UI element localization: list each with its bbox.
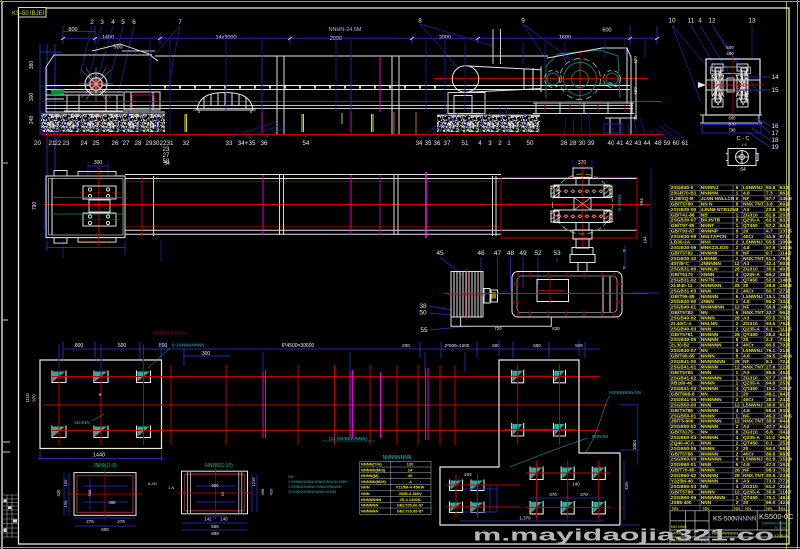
svg-text:NN: NN <box>779 506 785 511</box>
svg-text:17: 17 <box>771 130 779 137</box>
svg-text:75.1: 75.1 <box>780 468 790 474</box>
svg-text:62.5: 62.5 <box>766 218 776 224</box>
svg-text:2SGB31-02: 2SGB31-02 <box>671 277 697 283</box>
svg-text:2SGB41-03: 2SGB41-03 <box>671 386 697 392</box>
svg-text:40Cr: 40Cr <box>743 288 754 294</box>
svg-text:33.6: 33.6 <box>780 484 790 490</box>
svg-text:QT450: QT450 <box>743 223 758 229</box>
svg-text:2SGB60-00: 2SGB60-00 <box>671 457 697 463</box>
svg-text:370: 370 <box>578 160 587 166</box>
svg-text:1: 1 <box>736 191 739 197</box>
svg-text:N 1 N: N 1 N <box>775 526 785 530</box>
svg-text:NNNLN: NNNLN <box>701 267 718 273</box>
svg-text:500: 500 <box>118 343 127 349</box>
svg-text:9: 9 <box>521 18 525 25</box>
svg-text:BNNNN: BNNNN <box>701 332 719 338</box>
svg-text:25.0: 25.0 <box>780 381 790 387</box>
svg-text:2SGB31-00: 2SGB31-00 <box>671 267 697 273</box>
svg-text:NNNNNNNN-NN: NNNNNNNN-NN <box>609 390 641 395</box>
svg-text:46: 46 <box>477 250 485 257</box>
svg-text:NNNNN: NNNNN <box>701 424 719 430</box>
svg-text:1: 1 <box>736 413 739 419</box>
svg-text:2SGB30-08: 2SGB30-08 <box>671 234 697 240</box>
svg-text:69.9: 69.9 <box>780 201 790 207</box>
svg-text:2.3: 2.3 <box>766 337 773 343</box>
svg-text:150: 150 <box>63 500 68 507</box>
svg-text:50: 50 <box>419 310 427 317</box>
svg-text:NNNNN: NNNNN <box>701 435 719 441</box>
svg-text:600: 600 <box>533 343 541 348</box>
svg-text:M24NN: M24NN <box>74 420 89 425</box>
svg-text:NNN: NNN <box>701 370 712 376</box>
svg-text:36: 36 <box>434 140 441 147</box>
svg-text:21.6: 21.6 <box>780 348 790 354</box>
svg-text:NNWNJ: NNWNJ <box>701 185 719 191</box>
svg-text:248: 248 <box>29 116 35 125</box>
svg-text:XB160-40: XB160-40 <box>671 381 693 387</box>
svg-text:200: 200 <box>402 343 410 348</box>
svg-text:94.0: 94.0 <box>766 446 776 452</box>
svg-text:L5NWNJ: L5NWNJ <box>743 348 763 354</box>
svg-text:12: 12 <box>734 402 740 408</box>
svg-text:2SGB50-05: 2SGB50-05 <box>671 446 697 452</box>
svg-text:27: 27 <box>123 140 130 147</box>
svg-text:Q235-A: Q235-A <box>743 381 760 387</box>
svg-text:Q235-A: Q235-A <box>743 272 760 278</box>
svg-text:790: 790 <box>32 202 38 211</box>
svg-text:102.6: 102.6 <box>780 245 792 251</box>
svg-text:NN: NN <box>672 506 678 511</box>
svg-text:28: 28 <box>734 283 740 289</box>
svg-text:26: 26 <box>112 140 119 147</box>
svg-text:34+: 34+ <box>238 140 249 147</box>
svg-text:94.8: 94.8 <box>766 381 776 387</box>
svg-text:55.5: 55.5 <box>766 239 776 245</box>
svg-text:7.3: 7.3 <box>766 191 773 197</box>
svg-text:KS-500: KS-500 <box>713 516 735 523</box>
svg-text:39.5: 39.5 <box>766 354 776 360</box>
svg-text:76.4: 76.4 <box>780 321 790 327</box>
svg-text:2: 2 <box>736 321 739 327</box>
svg-text:JS85-4 380V: JS85-4 380V <box>398 491 422 496</box>
svg-text:6: 6 <box>132 19 136 26</box>
svg-text:3.28/XQ-B: 3.28/XQ-B <box>671 196 694 202</box>
svg-text:ZG310: ZG310 <box>743 267 758 273</box>
svg-text:97.7: 97.7 <box>766 375 776 381</box>
svg-text:2SGB50-02: 2SGB50-02 <box>671 424 697 430</box>
svg-text:NNNN NNNN: NNNN NNNN <box>153 331 186 337</box>
svg-text:NNNN: NNNN <box>701 468 715 474</box>
svg-text:2: 2 <box>736 288 739 294</box>
svg-text:MNK22LE20: MNK22LE20 <box>701 245 729 251</box>
svg-text:1: 1 <box>736 381 739 387</box>
svg-text:4.8: 4.8 <box>743 245 750 251</box>
svg-text:NNNNNNN: NNNNNNN <box>701 359 726 365</box>
svg-text:109.6: 109.6 <box>780 375 792 381</box>
svg-text:73.5: 73.5 <box>780 316 790 322</box>
svg-text:A3: A3 <box>743 478 749 484</box>
svg-text:1064: 1064 <box>632 439 637 450</box>
svg-text:JNNNNN: JNNNNN <box>701 261 722 267</box>
svg-text:64.1: 64.1 <box>780 223 790 229</box>
svg-text:QT450: QT450 <box>743 386 758 392</box>
svg-text:20.7: 20.7 <box>780 212 790 218</box>
svg-text:1: 1 <box>736 256 739 262</box>
svg-text:6: 6 <box>736 337 739 343</box>
svg-text:34: 34 <box>416 140 423 147</box>
svg-text:9.7: 9.7 <box>766 250 773 256</box>
svg-text:NNLNN: NNLNN <box>701 321 718 327</box>
svg-text:1440: 1440 <box>93 453 105 459</box>
svg-text:420: 420 <box>56 489 61 497</box>
svg-text:2: 2 <box>736 207 739 213</box>
svg-text:800: 800 <box>68 27 77 33</box>
svg-text:38.9: 38.9 <box>766 419 776 425</box>
svg-text:NB: NB <box>701 212 708 218</box>
svg-text:2SGB40-07: 2SGB40-07 <box>671 348 697 354</box>
svg-text:970: 970 <box>32 394 37 402</box>
svg-text:1:5: 1:5 <box>741 142 747 147</box>
svg-text:NNNNN-NNNNN: NNNNN-NNNNN <box>762 522 791 526</box>
svg-text:8: 8 <box>736 218 739 224</box>
svg-text:6.1: 6.1 <box>766 326 773 332</box>
svg-text:GB1T25.60-87: GB1T25.60-87 <box>397 503 424 508</box>
svg-text:2SGB30-10: 2SGB30-10 <box>671 256 697 262</box>
svg-text:54: 54 <box>303 140 310 147</box>
svg-text:63.8: 63.8 <box>780 185 790 191</box>
svg-text:28.2: 28.2 <box>766 332 776 338</box>
svg-text:0-1NNNNNNNN: 0-1NNNNNNNN <box>172 343 205 348</box>
svg-text:JNNN: JNNN <box>701 299 715 305</box>
svg-text:A3: A3 <box>743 207 749 213</box>
svg-text:35: 35 <box>425 140 432 147</box>
svg-text:NNNNNNNN: NNNNNNNN <box>383 455 412 461</box>
svg-text:40: 40 <box>408 473 413 478</box>
svg-text:47.0: 47.0 <box>766 462 776 468</box>
svg-text:NNTN: NNTN <box>701 277 715 283</box>
svg-text:88.6: 88.6 <box>780 207 790 213</box>
svg-text:51.2: 51.2 <box>766 484 776 490</box>
svg-text:47: 47 <box>494 250 502 257</box>
svg-text:142: 142 <box>205 517 213 522</box>
svg-text:270: 270 <box>86 519 94 524</box>
svg-text:11.0: 11.0 <box>766 435 775 441</box>
svg-text:50.7: 50.7 <box>766 288 776 294</box>
svg-text:670: 670 <box>729 122 737 127</box>
svg-text:(14-M24NNNNNN): (14-M24NNNNNN) <box>329 436 367 441</box>
svg-text:43: 43 <box>635 140 642 147</box>
svg-text:60: 60 <box>673 140 680 147</box>
svg-text:NNNNN: NNNNN <box>701 337 719 343</box>
svg-text:81.9: 81.9 <box>766 212 776 218</box>
svg-text:194: 194 <box>643 236 648 244</box>
svg-text:234: 234 <box>464 472 472 477</box>
svg-text:GB/T5781: GB/T5781 <box>671 332 693 338</box>
svg-text:160: 160 <box>63 479 68 486</box>
svg-text:2SGB60-03: 2SGB60-03 <box>671 484 697 490</box>
svg-text:94.7: 94.7 <box>780 392 790 398</box>
svg-text:112.5: 112.5 <box>780 326 792 332</box>
svg-text:500: 500 <box>726 45 734 50</box>
svg-text:NNN: NNN <box>701 288 712 294</box>
svg-text:51: 51 <box>462 140 469 147</box>
svg-text:NN: NN <box>745 506 751 511</box>
svg-text:85.5: 85.5 <box>766 370 776 376</box>
svg-text:1.NNNNNNNNNNNNNNNNN.NNN: 1.NNNNNNNNNNNNNNNNN.NNN <box>288 480 347 484</box>
svg-text:24.2: 24.2 <box>780 397 790 403</box>
svg-text:15: 15 <box>771 87 779 94</box>
svg-text:28: 28 <box>734 359 740 365</box>
svg-text:2: 2 <box>736 234 739 240</box>
svg-text:Y225M-40: Y225M-40 <box>671 478 693 484</box>
svg-text:30: 30 <box>579 140 586 147</box>
svg-text:NNNNNNN: NNNNNNN <box>701 495 726 501</box>
svg-text:47.7: 47.7 <box>766 424 776 430</box>
svg-text:L5NWNJ: L5NWNJ <box>743 294 763 300</box>
svg-text:NNNNN: NNNNN <box>701 473 719 479</box>
svg-text:NNX.TNT: NNX.TNT <box>743 310 764 316</box>
svg-text:2SGB60-01: 2SGB60-01 <box>671 462 697 468</box>
svg-text:GB/T70-85: GB/T70-85 <box>671 468 695 474</box>
svg-text:36.6: 36.6 <box>766 402 776 408</box>
svg-text:91.0: 91.0 <box>780 402 790 408</box>
svg-text:1: 1 <box>736 392 739 398</box>
svg-text:57.7: 57.7 <box>766 196 776 202</box>
svg-text:56.8: 56.8 <box>766 305 776 311</box>
svg-text:57.5: 57.5 <box>766 316 776 322</box>
svg-text:48.4: 48.4 <box>780 495 790 501</box>
svg-text:NNN: NNN <box>701 462 712 468</box>
svg-text:GB/T6175: GB/T6175 <box>671 430 693 436</box>
svg-text:NNNN8: NNNN8 <box>701 250 718 256</box>
svg-text:57.6: 57.6 <box>766 245 776 251</box>
svg-text:NNNNN: NNNNN <box>701 294 719 300</box>
svg-text:3: 3 <box>100 19 104 26</box>
svg-text:QT450: QT450 <box>743 332 758 338</box>
svg-text:2SGB30-09: 2SGB30-09 <box>671 245 697 251</box>
svg-text:2*600=1200: 2*600=1200 <box>445 343 470 348</box>
svg-text:608: 608 <box>101 527 109 532</box>
svg-text:61: 61 <box>682 140 689 147</box>
svg-text:LNNNE: LNNNE <box>701 256 718 262</box>
svg-text:NNNNNNN: NNNNNNN <box>361 497 381 502</box>
svg-text:NNN: NNN <box>701 326 712 332</box>
svg-text:410: 410 <box>624 482 629 490</box>
svg-text:NNNNN: NNNNN <box>701 408 719 414</box>
svg-text:2SGB40-05: 2SGB40-05 <box>671 337 697 343</box>
svg-text:24: 24 <box>408 467 413 472</box>
svg-text:27.6: 27.6 <box>766 364 776 370</box>
svg-text:75.1: 75.1 <box>766 495 776 501</box>
svg-text:98.6: 98.6 <box>780 451 790 457</box>
svg-text:8.1: 8.1 <box>766 359 773 365</box>
svg-text:64: 64 <box>740 167 746 173</box>
svg-text:14: 14 <box>771 74 779 81</box>
svg-text:93.5: 93.5 <box>766 321 776 327</box>
svg-text:15.1: 15.1 <box>766 294 776 300</box>
svg-text:114.2: 114.2 <box>780 250 792 256</box>
svg-text:45.3: 45.3 <box>780 370 790 376</box>
svg-text:45.3: 45.3 <box>766 413 776 419</box>
svg-text:28: 28 <box>135 140 142 147</box>
svg-text:2.NNNNNNNNN.NNNNNNNNN: 2.NNNNNNNNN.NNNNNNNNN <box>288 485 342 489</box>
svg-text:NNX.TNT: NNX.TNT <box>743 201 764 207</box>
svg-text:1-N: 1-N <box>168 485 175 490</box>
svg-text:2: 2 <box>736 239 739 245</box>
svg-text:NNHN-24.5M: NNHN-24.5M <box>328 27 361 33</box>
svg-text:L5NWNJ: L5NWNJ <box>743 402 763 408</box>
svg-text:Y225M-4 45KW: Y225M-4 45KW <box>396 485 425 490</box>
svg-text:2SGB50-01: 2SGB50-01 <box>671 413 697 419</box>
svg-text:1215: 1215 <box>251 477 256 487</box>
svg-text:ZQ40-4CA: ZQ40-4CA <box>671 440 695 446</box>
svg-text:20: 20 <box>743 283 749 289</box>
svg-text:48: 48 <box>507 250 515 257</box>
svg-text:12: 12 <box>734 419 740 425</box>
svg-text:2: 2 <box>736 397 739 403</box>
svg-text:370: 370 <box>580 492 588 497</box>
svg-text:4: 4 <box>698 18 702 25</box>
svg-text:32: 32 <box>183 140 190 147</box>
svg-text:NN:: NN: <box>288 475 295 479</box>
svg-text:23.9: 23.9 <box>780 473 790 479</box>
svg-text:2SGB41-00: 2SGB41-00 <box>671 359 697 365</box>
svg-text:6: 6 <box>736 196 739 202</box>
svg-text:NN: NN <box>701 430 708 436</box>
svg-text:64.4: 64.4 <box>780 419 790 425</box>
svg-text:6*4500=30600: 6*4500=30600 <box>282 343 315 349</box>
svg-text:QT450: QT450 <box>743 495 758 501</box>
svg-text:420: 420 <box>269 488 274 495</box>
svg-text:2SGB60-02: 2SGB60-02 <box>671 473 697 479</box>
svg-text:4: 4 <box>736 386 739 392</box>
svg-text:64.7: 64.7 <box>780 424 790 430</box>
svg-text:QT450: QT450 <box>743 440 758 446</box>
svg-text:3: 3 <box>488 140 492 147</box>
svg-text:152.9: 152.9 <box>780 457 792 463</box>
svg-text:68.4: 68.4 <box>766 408 776 414</box>
svg-text:4.8: 4.8 <box>743 462 750 468</box>
svg-text:15.1: 15.1 <box>766 386 776 392</box>
svg-text:GB/T6170: GB/T6170 <box>671 272 693 278</box>
svg-text:86.2: 86.2 <box>780 191 790 197</box>
svg-text:23.9: 23.9 <box>766 207 776 213</box>
svg-text:300: 300 <box>29 93 35 102</box>
svg-text:NN: NN <box>766 506 772 511</box>
svg-text:110.7: 110.7 <box>780 489 792 495</box>
svg-text:50.9: 50.9 <box>780 261 790 267</box>
svg-text:2: 2 <box>498 140 502 147</box>
svg-text:74.4: 74.4 <box>780 337 790 343</box>
svg-text:NNN: NNN <box>701 440 712 446</box>
svg-text:L5NWNJ: L5NWNJ <box>743 457 763 463</box>
svg-text:20: 20 <box>743 337 749 343</box>
svg-text:2SGB40-02: 2SGB40-02 <box>671 316 697 322</box>
svg-text:2SGB60-05: 2SGB60-05 <box>671 495 697 501</box>
svg-text:B: B <box>623 248 626 253</box>
svg-text:IBJEI: IBJEI <box>30 11 45 17</box>
svg-text:800: 800 <box>75 343 84 349</box>
svg-text:73.3: 73.3 <box>766 478 776 484</box>
svg-text:668: 668 <box>211 524 219 529</box>
svg-text:NNNN: NNNN <box>701 381 715 387</box>
svg-text:JLNN NNLLCN: JLNN NNLLCN <box>701 196 735 202</box>
svg-text:8: 8 <box>418 18 422 25</box>
svg-text:NF: NF <box>743 359 749 365</box>
svg-text:NN: NN <box>701 392 708 398</box>
svg-text:139.5: 139.5 <box>780 413 792 419</box>
svg-text:25.1: 25.1 <box>780 440 790 446</box>
svg-text:460: 460 <box>633 87 638 95</box>
svg-text:95.2: 95.2 <box>766 299 776 305</box>
svg-text:370: 370 <box>549 492 557 497</box>
svg-text:42.4: 42.4 <box>766 261 776 267</box>
svg-text:1: 1 <box>507 140 511 147</box>
svg-text:4: 4 <box>736 435 739 441</box>
svg-text:500: 500 <box>113 45 122 51</box>
svg-text:145.6: 145.6 <box>780 196 792 202</box>
svg-text:Q235-A: Q235-A <box>743 326 760 332</box>
svg-text:GB/T5786: GB/T5786 <box>671 408 693 414</box>
svg-text:6: 6 <box>736 478 739 484</box>
svg-text:Q235-A: Q235-A <box>743 218 760 224</box>
svg-text:4: 4 <box>736 272 739 278</box>
svg-text:40.5: 40.5 <box>780 267 790 273</box>
svg-text:4: 4 <box>736 457 739 463</box>
svg-text:NN: NN <box>703 506 709 511</box>
svg-text:2SGB50-00: 2SGB50-00 <box>671 402 697 408</box>
svg-text:2: 2 <box>90 19 94 26</box>
svg-text:58: 58 <box>163 159 170 165</box>
svg-text:40Cr: 40Cr <box>743 343 754 349</box>
svg-text:79.9: 79.9 <box>780 256 790 262</box>
svg-text:35.9: 35.9 <box>766 267 776 273</box>
svg-text:28.6: 28.6 <box>766 283 776 289</box>
svg-text:78.7: 78.7 <box>780 294 790 300</box>
svg-text:140.1: 140.1 <box>780 277 792 283</box>
svg-text:2SGB41-05: 2SGB41-05 <box>671 397 697 403</box>
svg-text:420: 420 <box>633 56 638 64</box>
svg-text:8: 8 <box>736 348 739 354</box>
svg-text:NNNNN: NNNNN <box>701 451 719 457</box>
svg-text:109.4: 109.4 <box>780 239 792 245</box>
svg-text:NNNNXN: NNNNXN <box>701 283 722 289</box>
svg-text:16: 16 <box>771 123 779 130</box>
svg-text:NNNN: NNNN <box>701 446 715 452</box>
svg-text:48.1: 48.1 <box>766 392 776 398</box>
svg-text:GB/T5780: GB/T5780 <box>671 201 693 207</box>
svg-text:53: 53 <box>553 250 561 257</box>
svg-text:NNNNNN: NNNNNN <box>361 508 378 513</box>
svg-text:40: 40 <box>608 140 615 147</box>
svg-text:4.8: 4.8 <box>743 408 750 414</box>
svg-text:28: 28 <box>570 140 577 147</box>
svg-text:A3: A3 <box>743 424 749 430</box>
svg-text:61.3: 61.3 <box>766 256 776 262</box>
svg-text:4: 4 <box>736 408 739 414</box>
svg-text:NNX.TNT: NNX.TNT <box>743 473 764 479</box>
svg-text:2: 2 <box>736 440 739 446</box>
svg-text:72.4: 72.4 <box>780 359 790 365</box>
svg-text:6: 6 <box>736 185 739 191</box>
svg-text:NNNN: NNNN <box>701 354 715 360</box>
svg-text:4: 4 <box>478 140 482 147</box>
svg-text:508: 508 <box>87 489 92 496</box>
svg-text:86.6: 86.6 <box>766 451 776 457</box>
svg-text:720: 720 <box>494 326 502 331</box>
svg-text:BKJNTB: BKJNTB <box>701 218 721 224</box>
svg-text:2SGB40-01: 2SGB40-01 <box>671 305 697 311</box>
